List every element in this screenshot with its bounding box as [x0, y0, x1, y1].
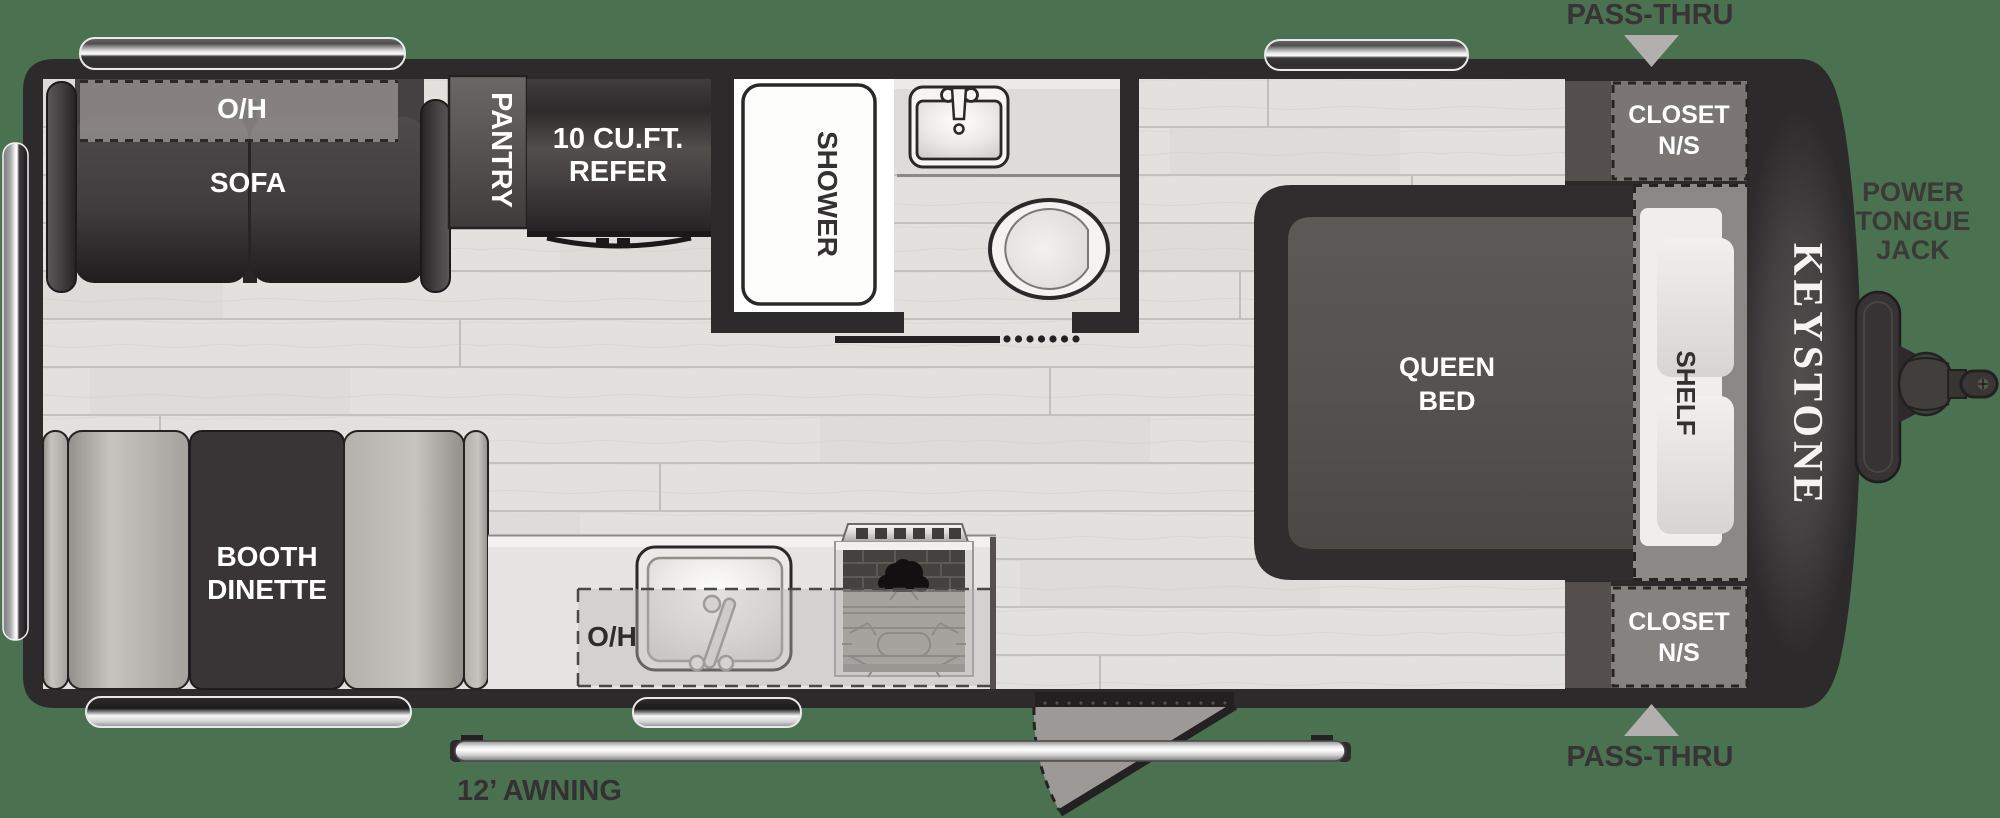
- svg-text:BED: BED: [1418, 386, 1475, 416]
- svg-text:10 CU.FT.: 10 CU.FT.: [553, 123, 684, 155]
- svg-text:TONGUE: TONGUE: [1855, 206, 1970, 236]
- svg-text:POWER: POWER: [1862, 177, 1964, 207]
- svg-text:JACK: JACK: [1876, 235, 1950, 265]
- svg-text:KEYSTONE: KEYSTONE: [1784, 243, 1830, 508]
- svg-text:SHELF: SHELF: [1671, 350, 1701, 435]
- svg-text:DINETTE: DINETTE: [207, 574, 327, 605]
- svg-text:PANTRY: PANTRY: [485, 92, 517, 208]
- svg-text:SOFA: SOFA: [210, 167, 286, 198]
- svg-text:QUEEN: QUEEN: [1399, 352, 1495, 382]
- svg-text:PASS-THRU: PASS-THRU: [1566, 741, 1733, 773]
- svg-text:PASS-THRU: PASS-THRU: [1566, 0, 1733, 31]
- svg-text:N/S: N/S: [1658, 639, 1700, 667]
- svg-text:CLOSET: CLOSET: [1628, 101, 1729, 129]
- svg-text:SHOWER: SHOWER: [812, 131, 843, 257]
- svg-text:CLOSET: CLOSET: [1628, 608, 1729, 636]
- svg-text:12’ AWNING: 12’ AWNING: [457, 775, 622, 807]
- svg-text:N/S: N/S: [1658, 132, 1700, 160]
- svg-text:O/H: O/H: [587, 621, 637, 652]
- svg-text:O/H: O/H: [217, 93, 267, 124]
- svg-text:REFER: REFER: [569, 156, 667, 188]
- svg-text:BOOTH: BOOTH: [216, 541, 317, 572]
